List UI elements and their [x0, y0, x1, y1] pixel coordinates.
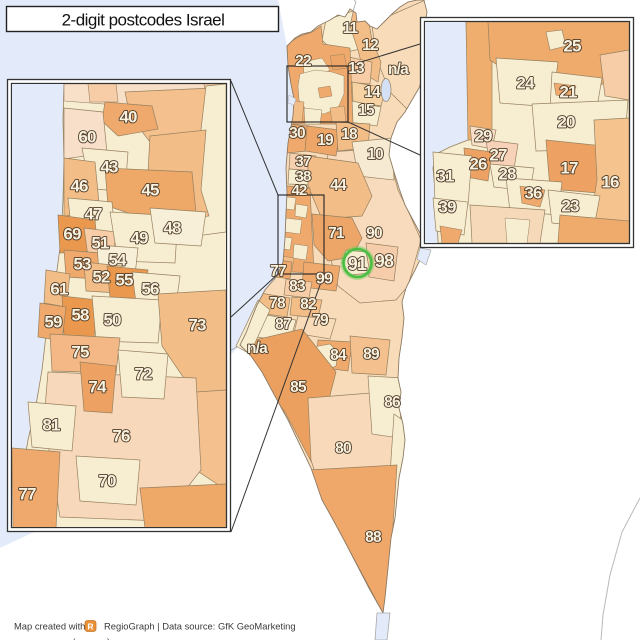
- svg-text:23: 23: [561, 197, 579, 216]
- svg-text:17: 17: [560, 159, 578, 178]
- svg-text:21: 21: [559, 83, 577, 102]
- svg-text:79: 79: [312, 312, 329, 329]
- svg-text:58: 58: [71, 306, 89, 325]
- svg-text:48: 48: [163, 219, 181, 238]
- svg-text:15: 15: [358, 102, 375, 119]
- svg-text:10: 10: [367, 146, 383, 163]
- svg-text:2-digit postcodes Israel: 2-digit postcodes Israel: [62, 11, 225, 30]
- svg-text:74: 74: [88, 378, 107, 397]
- svg-text:n/a: n/a: [247, 340, 268, 357]
- svg-text:30: 30: [289, 125, 305, 142]
- svg-text:36: 36: [524, 184, 542, 203]
- svg-text:20: 20: [557, 113, 575, 132]
- svg-text:54: 54: [108, 251, 127, 270]
- svg-text:R: R: [87, 621, 93, 631]
- svg-text:89: 89: [363, 346, 380, 363]
- svg-text:29: 29: [474, 127, 492, 146]
- svg-text:12: 12: [362, 37, 378, 54]
- svg-text:81: 81: [42, 416, 60, 435]
- svg-text:90: 90: [366, 225, 382, 242]
- svg-text:52: 52: [92, 268, 110, 287]
- svg-text:70: 70: [98, 472, 116, 491]
- svg-text:24: 24: [516, 74, 535, 93]
- svg-text:78: 78: [269, 295, 286, 312]
- svg-text:44: 44: [330, 177, 347, 194]
- svg-text:n/a: n/a: [388, 61, 409, 78]
- svg-text:47: 47: [84, 205, 102, 224]
- svg-text:60: 60: [78, 128, 96, 147]
- svg-text:25: 25: [563, 37, 581, 56]
- svg-text:22: 22: [295, 53, 311, 70]
- svg-text:59: 59: [44, 313, 62, 332]
- svg-text:83: 83: [289, 278, 306, 295]
- svg-text:49: 49: [130, 229, 148, 248]
- svg-text:19: 19: [317, 132, 334, 149]
- svg-text:46: 46: [70, 177, 88, 196]
- svg-text:84: 84: [330, 347, 347, 364]
- svg-text:43: 43: [100, 158, 118, 177]
- svg-text:77: 77: [270, 263, 286, 280]
- svg-text:76: 76: [112, 427, 130, 446]
- svg-text:73: 73: [188, 316, 206, 335]
- svg-text:69: 69: [63, 225, 81, 244]
- svg-text:85: 85: [290, 379, 307, 396]
- svg-text:80: 80: [335, 440, 351, 457]
- svg-text:55: 55: [115, 271, 133, 290]
- svg-text:99: 99: [316, 270, 333, 287]
- svg-text:42: 42: [291, 182, 307, 199]
- svg-text:28: 28: [498, 165, 516, 184]
- svg-text:27: 27: [489, 146, 507, 165]
- svg-text:RegioGraph | Data source: GfK: RegioGraph | Data source: GfK GeoMarketi…: [104, 621, 296, 632]
- svg-text:72: 72: [134, 365, 152, 384]
- svg-text:61: 61: [50, 280, 68, 299]
- svg-text:86: 86: [384, 394, 401, 411]
- svg-text:71: 71: [328, 225, 345, 242]
- svg-text:31: 31: [436, 167, 454, 186]
- svg-text:14: 14: [364, 84, 381, 101]
- svg-text:13: 13: [348, 60, 365, 77]
- svg-text:82: 82: [300, 296, 316, 313]
- svg-text:75: 75: [71, 343, 89, 362]
- svg-text:45: 45: [141, 181, 159, 200]
- svg-text:40: 40: [119, 108, 137, 127]
- svg-text:53: 53: [73, 255, 91, 274]
- svg-text:91: 91: [348, 254, 367, 274]
- svg-text:87: 87: [275, 316, 291, 333]
- svg-text:88: 88: [365, 529, 382, 546]
- svg-text:11: 11: [343, 20, 359, 37]
- svg-text:Map created with: Map created with: [14, 621, 85, 632]
- svg-text:16: 16: [601, 173, 619, 192]
- svg-text:77: 77: [18, 485, 36, 504]
- svg-text:39: 39: [438, 198, 456, 217]
- svg-text:51: 51: [91, 234, 109, 253]
- svg-text:18: 18: [341, 126, 358, 143]
- svg-text:56: 56: [141, 280, 159, 299]
- svg-text:50: 50: [103, 311, 121, 330]
- svg-text:98: 98: [375, 251, 394, 271]
- svg-text:26: 26: [469, 155, 487, 174]
